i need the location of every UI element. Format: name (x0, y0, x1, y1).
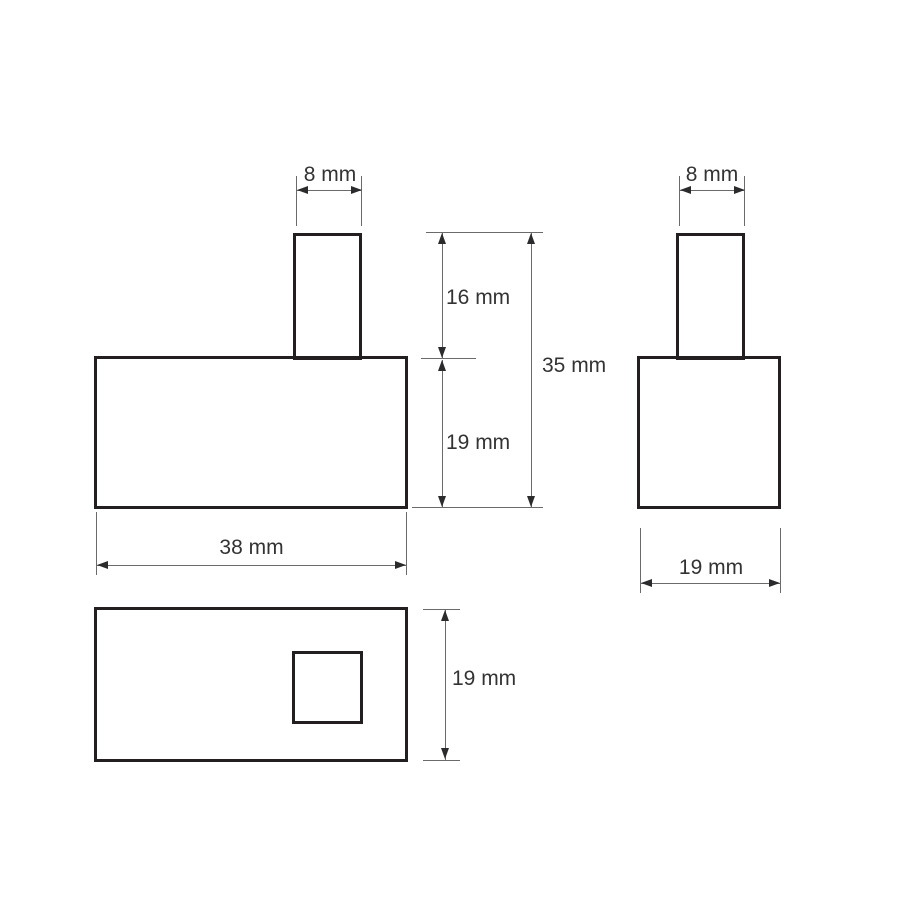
arrowhead-down-icon (438, 496, 446, 507)
arrowhead-right-icon (734, 186, 745, 194)
arrowhead-up-icon (441, 610, 449, 621)
side-view-tab-outline (676, 233, 745, 360)
dimension-label-side-tab-width: 8 mm (674, 163, 750, 187)
arrowhead-up-icon (527, 233, 535, 244)
dimension-line-side-body-width (641, 583, 780, 584)
arrowhead-left-icon (297, 186, 308, 194)
side-view-body-outline (637, 356, 781, 509)
dimension-line-top-body-depth (445, 610, 446, 760)
arrowhead-left-icon (641, 579, 652, 587)
dimension-label-front-body-width: 38 mm (96, 536, 407, 560)
dimension-label-front-total-height: 35 mm (542, 354, 606, 378)
dimension-label-front-body-height: 19 mm (446, 431, 510, 455)
dimension-line-front-total-height (531, 233, 532, 507)
arrowhead-right-icon (395, 561, 406, 569)
dimension-label-side-body-width: 19 mm (650, 556, 772, 580)
arrowhead-left-icon (680, 186, 691, 194)
arrowhead-right-icon (351, 186, 362, 194)
arrowhead-down-icon (527, 496, 535, 507)
arrowhead-right-icon (769, 579, 780, 587)
extension-line (780, 528, 781, 593)
dimension-label-front-tab-width: 8 mm (292, 163, 368, 187)
dimension-line-front-tab-height (442, 233, 443, 358)
extension-line (412, 507, 543, 508)
dimension-line-front-body-height (442, 360, 443, 507)
front-view-tab-outline (293, 233, 362, 360)
dimension-line-front-body-width (97, 565, 406, 566)
technical-drawing-canvas: 8 mm 16 mm 19 mm 35 mm 38 mm 8 mm 19 mm (0, 0, 900, 900)
arrowhead-left-icon (97, 561, 108, 569)
dimension-label-front-tab-height: 16 mm (446, 286, 510, 310)
top-view-tab-outline (292, 651, 363, 724)
arrowhead-up-icon (438, 360, 446, 371)
extension-line (423, 760, 460, 761)
dimension-label-top-body-depth: 19 mm (452, 667, 516, 691)
arrowhead-down-icon (438, 347, 446, 358)
arrowhead-up-icon (438, 233, 446, 244)
extension-line (421, 358, 476, 359)
front-view-body-outline (94, 356, 408, 509)
arrowhead-down-icon (441, 748, 449, 759)
